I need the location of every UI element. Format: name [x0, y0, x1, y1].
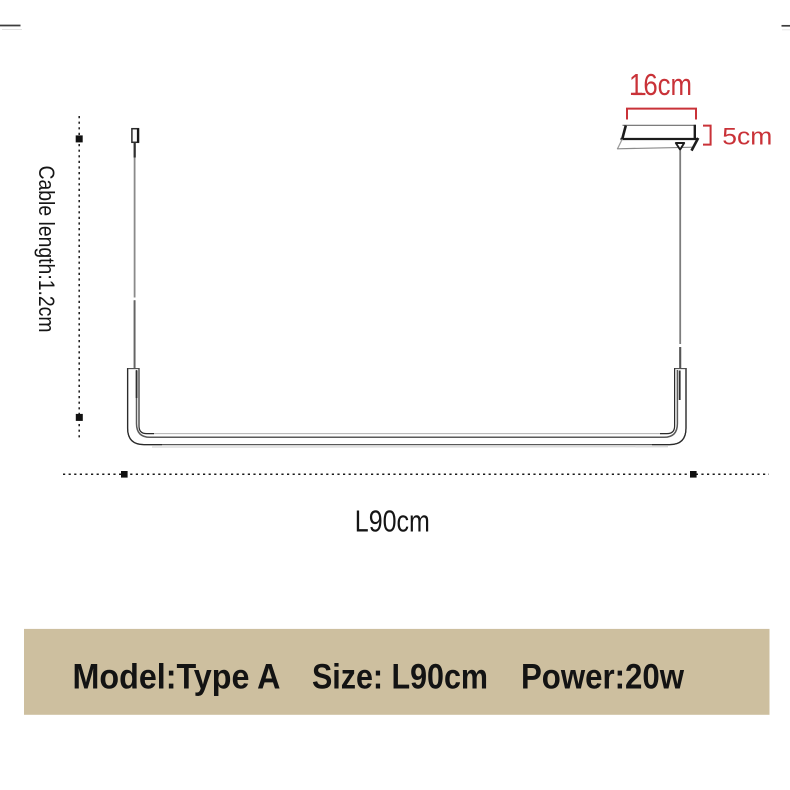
svg-text:Model:Type A: Model:Type A — [73, 657, 281, 697]
svg-text:Cable length:1.2cm: Cable length:1.2cm — [34, 166, 59, 333]
svg-text:L90cm: L90cm — [355, 505, 430, 539]
svg-text:Power:20w: Power:20w — [521, 657, 684, 697]
svg-text:16cm: 16cm — [629, 68, 692, 102]
svg-text:5cm: 5cm — [722, 123, 772, 150]
svg-text:Size: L90cm: Size: L90cm — [312, 657, 488, 697]
